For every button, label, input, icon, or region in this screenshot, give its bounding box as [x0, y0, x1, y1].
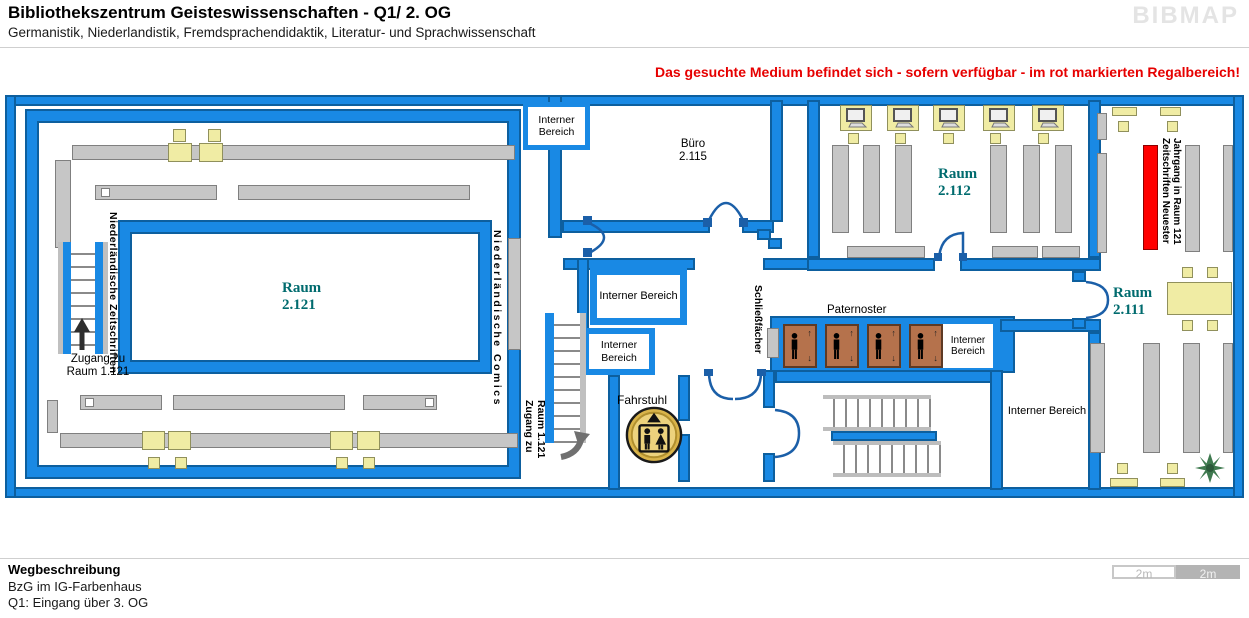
shelf	[1223, 145, 1233, 252]
stair-flight	[823, 395, 931, 431]
computer-desk	[933, 105, 965, 131]
shelf	[847, 246, 925, 258]
down-arrow-icon: ↓	[849, 354, 854, 363]
shelf	[1042, 246, 1080, 258]
shelf	[895, 145, 912, 233]
stair-rail	[580, 313, 586, 443]
interner-bereich-box: Interner Bereich	[590, 268, 687, 325]
room-number: 2.115	[653, 151, 733, 164]
highlight-notice: Das gesuchte Medium befindet sich - sofe…	[655, 64, 1240, 80]
paternoster-cabin: ↑↓	[867, 324, 901, 368]
stair-rail	[63, 242, 71, 354]
outer-wall-right	[1233, 95, 1244, 498]
footer-heading: Wegbeschreibung	[8, 562, 120, 577]
shelf	[990, 145, 1007, 233]
shelf	[508, 238, 521, 350]
door-hinge-block	[1072, 318, 1086, 329]
table	[1112, 107, 1137, 116]
page-title: Bibliothekszentrum Geisteswissenschaften…	[8, 3, 451, 23]
outer-wall-left	[5, 95, 16, 498]
shelf	[1097, 113, 1107, 140]
computer-desk	[983, 105, 1015, 131]
table	[1160, 107, 1181, 116]
table	[1167, 282, 1232, 315]
plant-icon	[1195, 453, 1225, 483]
person-icon	[872, 330, 885, 362]
up-arrow-icon: ↑	[891, 329, 896, 338]
chair	[173, 129, 186, 142]
shelf	[95, 185, 217, 200]
interner-bereich-label: Interner Bereich	[1008, 405, 1086, 417]
chair	[1117, 463, 1128, 474]
table	[1110, 478, 1138, 487]
locker-block	[767, 328, 779, 358]
up-arrow-icon: ↑	[807, 329, 812, 338]
page-subtitle: Germanistik, Niederlandistik, Fremdsprac…	[8, 25, 535, 40]
computer-desk	[887, 105, 919, 131]
down-arrow-icon: ↓	[891, 354, 896, 363]
shelf	[55, 160, 71, 248]
chair	[1167, 121, 1178, 132]
room-name: Raum	[282, 280, 321, 297]
chair	[1167, 463, 1178, 474]
shelf	[1097, 153, 1107, 253]
monitor-icon	[844, 107, 868, 129]
chair	[1207, 267, 1218, 278]
person-icon	[914, 330, 927, 362]
chair	[336, 457, 348, 469]
down-arrow-icon: ↓	[807, 354, 812, 363]
wall-step	[768, 238, 782, 249]
red-shelf-label: Zeitschriften Neuester Jahrgang in Raum …	[1160, 138, 1182, 263]
zugang-1121-vertical-label: Zugang zu Raum 1.121	[523, 400, 547, 482]
room-name: Raum	[938, 166, 977, 183]
interner-bereich-box: Interner Bereich	[523, 102, 590, 150]
footer-divider	[0, 558, 1249, 559]
shelf-marker	[425, 398, 434, 407]
chair	[208, 129, 221, 142]
person-icon	[830, 330, 843, 362]
table	[168, 431, 191, 450]
highlighted-shelf	[1143, 145, 1158, 250]
shelf	[1090, 343, 1105, 453]
interner-bereich-label: Interner Bereich	[589, 339, 649, 363]
wall-segment	[807, 100, 820, 258]
shelf	[60, 433, 518, 448]
shelf	[1223, 343, 1233, 453]
elevator-icon	[625, 406, 683, 464]
schliessfaecher-label: Schließfächer	[752, 285, 764, 375]
chair	[1207, 320, 1218, 331]
shelf	[47, 400, 58, 433]
computer-desk	[1032, 105, 1064, 131]
monitor-icon	[937, 107, 961, 129]
shelf	[1055, 145, 1072, 233]
stairs-to-1121	[58, 242, 108, 354]
room-number: 2.121	[282, 297, 321, 314]
shelf	[1185, 145, 1200, 252]
room-number: 2.112	[938, 183, 977, 200]
chair	[895, 133, 906, 144]
shelf	[832, 145, 849, 233]
stair-landing	[831, 431, 937, 441]
chair	[148, 457, 160, 469]
room-buero-label: Büro 2.115	[653, 138, 733, 164]
wall-segment	[960, 258, 1101, 271]
chair	[990, 133, 1001, 144]
zugang-line2: Raum 1.121	[535, 400, 547, 482]
shelf	[238, 185, 470, 200]
footer-entrance: Q1: Eingang über 3. OG	[8, 595, 148, 610]
wall-segment	[807, 258, 935, 271]
shelf-marker	[85, 398, 94, 407]
interner-bereich-box: Interner Bereich	[1007, 391, 1087, 431]
shelf	[1183, 343, 1200, 453]
shelf	[1143, 343, 1160, 453]
bibmap-logo: BIBMAP	[1132, 2, 1239, 30]
paternoster-cabin: ↑↓	[909, 324, 943, 368]
shelf	[1023, 145, 1040, 233]
paternoster-cabin: ↑↓	[783, 324, 817, 368]
interner-bereich-label: Interner Bereich	[943, 335, 993, 357]
shelf	[173, 395, 345, 410]
wall-segment	[763, 370, 775, 408]
outer-wall-bottom	[5, 487, 1244, 498]
person-icon	[788, 330, 801, 362]
bibmap-floorplan-page: { "header": { "title": "Bibliothekszentr…	[0, 0, 1249, 618]
chair	[1182, 267, 1193, 278]
zugang-line2: Raum 1.121	[43, 366, 153, 379]
table	[1160, 478, 1185, 487]
interner-bereich-box: Interner Bereich	[943, 324, 993, 368]
shelf-marker	[101, 188, 110, 197]
zugang-line1: Zugang zu	[523, 400, 535, 482]
monitor-icon	[1036, 107, 1060, 129]
stair-steps	[554, 313, 580, 443]
table	[168, 143, 192, 162]
chair	[1182, 320, 1193, 331]
table	[330, 431, 353, 450]
room-name: Raum	[1113, 285, 1152, 302]
footer-building: BzG im IG-Farbenhaus	[8, 579, 142, 594]
shelf	[863, 145, 880, 233]
paternoster-label: Paternoster	[827, 304, 927, 317]
door-hinge-block	[1072, 271, 1086, 282]
chair	[363, 457, 375, 469]
up-arrow-icon: ↑	[849, 329, 854, 338]
zugang-line1: Zugang zu	[43, 353, 153, 366]
paternoster-cabin: ↑↓	[825, 324, 859, 368]
monitor-icon	[987, 107, 1011, 129]
interner-bereich-label: Interner Bereich	[528, 114, 585, 138]
nl-zeitschriften-label: Niederländische Zeitschriften	[107, 212, 119, 382]
chair	[848, 133, 859, 144]
interner-bereich-box: Interner Bereich	[583, 328, 655, 375]
wall-segment	[775, 370, 997, 383]
chair	[175, 457, 187, 469]
header-divider	[0, 47, 1249, 48]
monitor-icon	[891, 107, 915, 129]
table	[357, 431, 380, 450]
wall-segment	[562, 220, 710, 233]
stair-rail	[95, 242, 103, 354]
room-2112-label: Raum 2.112	[938, 166, 977, 200]
nl-comics-label: Niederländische Comics	[491, 230, 503, 440]
up-arrow-icon: ↑	[933, 329, 938, 338]
table	[199, 143, 223, 162]
stairs-to-1121-middle	[545, 313, 589, 443]
wall-segment	[990, 370, 1003, 490]
table	[142, 431, 165, 450]
wall-segment	[763, 453, 775, 482]
scale-bar-segment: 2m	[1112, 565, 1176, 579]
chair	[943, 133, 954, 144]
room-2111-label: Raum 2.111	[1113, 285, 1152, 319]
shelf	[992, 246, 1038, 258]
scale-bar-segment: 2m	[1176, 565, 1240, 579]
red-shelf-line2: Jahrgang in Raum 121	[1171, 138, 1182, 263]
wall-segment	[770, 100, 783, 222]
room-name: Büro	[653, 138, 733, 151]
interner-bereich-label: Interner Bereich	[599, 290, 677, 303]
room-2121-label: Raum 2.121	[282, 280, 321, 314]
down-arrow-icon: ↓	[933, 354, 938, 363]
chair	[1038, 133, 1049, 144]
red-shelf-line1: Zeitschriften Neuester	[1160, 138, 1171, 263]
zugang-1121-label: Zugang zu Raum 1.121	[43, 353, 153, 379]
room-number: 2.111	[1113, 302, 1152, 319]
chair	[1118, 121, 1129, 132]
computer-desk	[840, 105, 872, 131]
floor-plan: Raum 2.121 Zugang zu Raum 1.121 Niederlä…	[5, 88, 1244, 498]
stair-steps	[71, 242, 95, 354]
stair-flight	[833, 441, 941, 477]
shelf	[72, 145, 515, 160]
